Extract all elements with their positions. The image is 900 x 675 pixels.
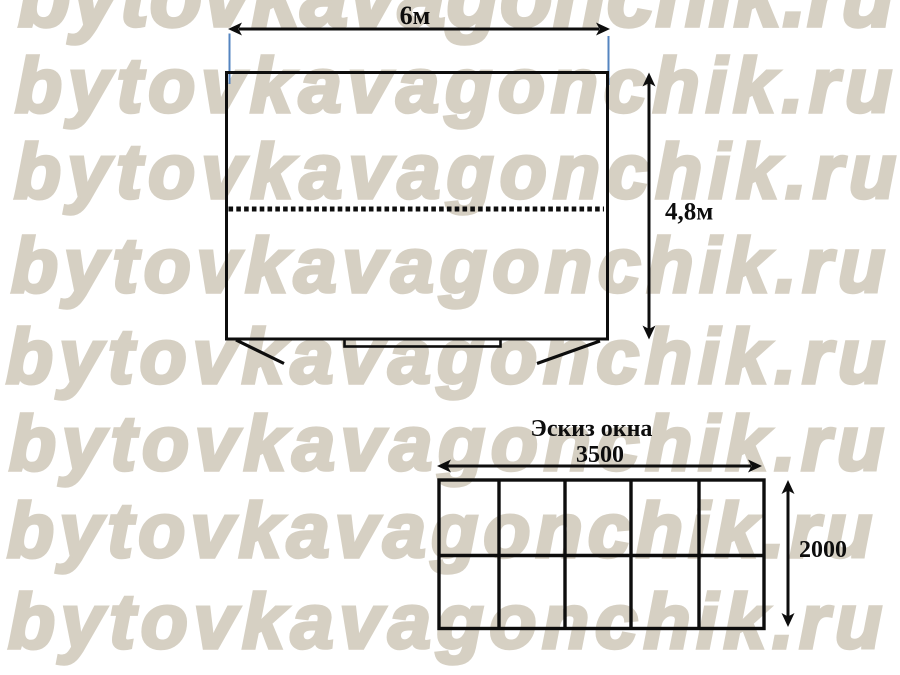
svg-text:4,8м: 4,8м <box>665 199 713 226</box>
svg-text:2000: 2000 <box>799 537 847 563</box>
svg-text:Эскиз окна: Эскиз окна <box>531 416 653 442</box>
svg-text:3500: 3500 <box>576 442 624 468</box>
svg-text:bytovkavagonchik.ru: bytovkavagonchik.ru <box>18 0 894 45</box>
svg-text:6м: 6м <box>400 1 431 30</box>
